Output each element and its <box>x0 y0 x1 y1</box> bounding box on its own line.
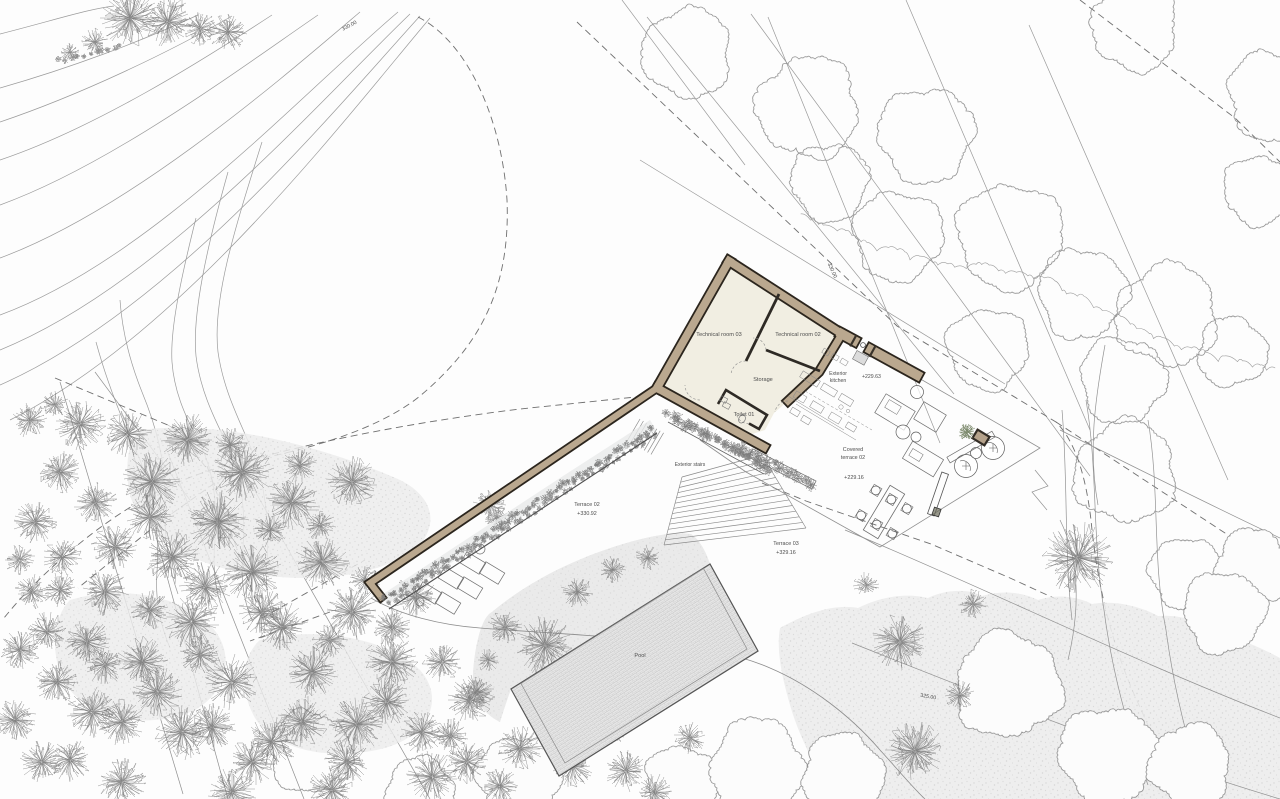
svg-text:terrace 02: terrace 02 <box>841 455 865 461</box>
svg-text:Toilet 01: Toilet 01 <box>734 412 755 418</box>
svg-text:Pool: Pool <box>634 653 645 659</box>
svg-text:+330.92: +330.92 <box>577 511 597 517</box>
svg-text:Covered: Covered <box>843 447 863 453</box>
svg-text:Exterior stairs: Exterior stairs <box>675 462 706 468</box>
svg-text:+229.63: +229.63 <box>862 374 881 380</box>
svg-text:Terrace 03: Terrace 03 <box>773 541 798 547</box>
svg-text:Storage: Storage <box>753 377 773 383</box>
svg-text:Technical room 03: Technical room 03 <box>696 332 741 338</box>
svg-text:kitchen: kitchen <box>830 378 847 384</box>
svg-text:+329.16: +329.16 <box>776 550 796 556</box>
svg-text:Terrace 02: Terrace 02 <box>574 502 599 508</box>
svg-text:+229.16: +229.16 <box>844 475 864 481</box>
svg-text:Technical room 02: Technical room 02 <box>775 332 820 338</box>
svg-text:Exterior: Exterior <box>829 371 847 377</box>
